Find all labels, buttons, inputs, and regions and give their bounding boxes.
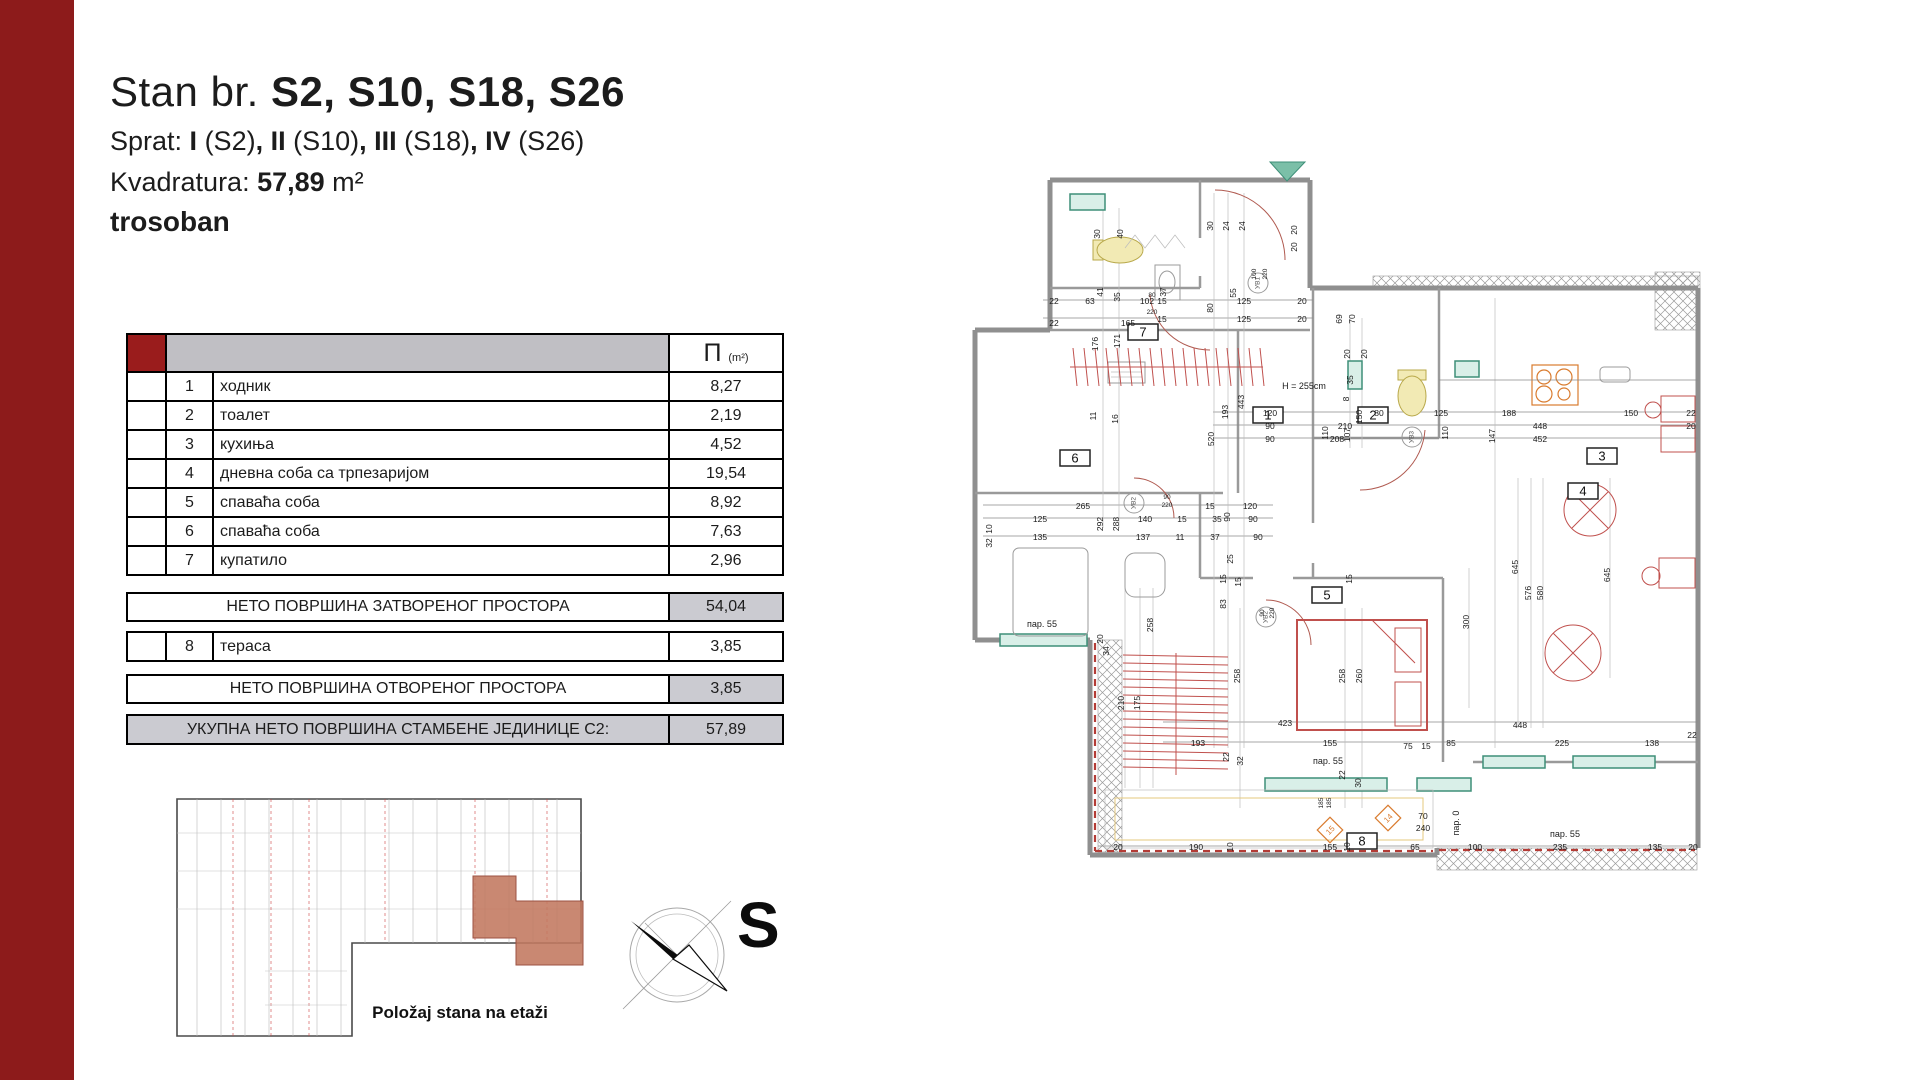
dimension-label: 22 [1686, 408, 1696, 418]
floor-plan-svg: 12345678 УВ1УВ2УВ2УВ3 1514 2263102221658… [783, 148, 1703, 888]
dimension-label: 20 [1686, 421, 1696, 431]
dimension-label: 11 [1088, 411, 1098, 420]
dimension-label: 22 [1337, 770, 1347, 780]
dimension-label: 125 [1237, 314, 1251, 324]
window-icon [1483, 756, 1545, 768]
dimension-label: 90 [1265, 421, 1275, 431]
dimension-label: 69 [1334, 314, 1344, 324]
dimension-label: 75 [1403, 741, 1413, 751]
room-area: 8,27 [669, 372, 783, 401]
svg-text:УВ3: УВ3 [1409, 431, 1416, 443]
dimension-label: 137 [1136, 532, 1150, 542]
dimension-label: 423 [1278, 718, 1292, 728]
dimension-label: 85 [1446, 738, 1456, 748]
dimension-label: 20 [1297, 314, 1307, 324]
table-row: 6спаваћа соба7,63 [127, 517, 783, 546]
dimension-label: 10 [984, 524, 994, 534]
dimension-label: 32 [984, 538, 994, 548]
dimension-label: 171 [1112, 334, 1122, 348]
diamond-marker: 14 [1375, 805, 1400, 830]
dimension-label: 90 [1222, 512, 1232, 522]
dimension-label: 188 [1502, 408, 1516, 418]
dimension-label: 20 [1289, 242, 1299, 252]
dimension-label: 65 [1410, 842, 1420, 852]
dimension-label: 150 [1354, 410, 1364, 424]
dimension-label: 15 [1157, 314, 1167, 324]
area-line: Kvadratura: 57,89 m² [110, 167, 625, 198]
dimension-label: 520 [1206, 432, 1216, 446]
compass [615, 893, 743, 1023]
dimension-label: 35 [1345, 375, 1355, 385]
dimension-label: 220 [1162, 502, 1173, 509]
dimension-label: 448 [1533, 421, 1547, 431]
floor-line: Sprat: I (S2), II (S10), III (S18), IV (… [110, 126, 625, 157]
table-row: 3кухиња4,52 [127, 430, 783, 459]
page-title: Stan br. S2, S10, S18, S26 [110, 68, 625, 116]
dimension-label: 220 [1262, 268, 1269, 279]
floor-line-segment: (S18) [397, 126, 471, 156]
dimension-label: 220 [1269, 607, 1276, 618]
apartment-type: trosoban [110, 206, 625, 238]
dimension-label: 100 [1251, 268, 1258, 279]
dimension-label: 288 [1111, 517, 1121, 531]
compass-icon [615, 893, 743, 1018]
dimension-label: 30 [1205, 221, 1215, 231]
dimension-label: пар. 55 [1313, 756, 1343, 766]
dimension-label: 265 [1076, 501, 1090, 511]
header-gray-cell [166, 334, 669, 372]
dimension-label: 24 [1237, 221, 1247, 231]
armchair-icon [1125, 553, 1165, 597]
wardrobe-hatch [1123, 653, 1228, 775]
dimension-label: 37 [1210, 532, 1220, 542]
room-number-boxes: 12345678 [1060, 324, 1617, 849]
dimension-label: 34 [1101, 646, 1111, 656]
table-row: 1ходник8,27 [127, 372, 783, 401]
total-area-table: УКУПНА НЕТО ПОВРШИНА СТАМБЕНЕ ЈЕДИНИЦЕ С… [126, 714, 784, 745]
table-header-row: П (m²) [127, 334, 783, 372]
room-name: тоалет [213, 401, 669, 430]
room-area: 7,63 [669, 517, 783, 546]
dimension-label: 120 [1243, 501, 1257, 511]
room-name: ходник [213, 372, 669, 401]
row-marker-cell [127, 430, 166, 459]
dimension-label: 235 [1553, 842, 1567, 852]
table-row: 5спаваћа соба8,92 [127, 488, 783, 517]
row-marker-cell [127, 459, 166, 488]
dimension-label: 80 [1205, 303, 1215, 313]
dimension-label: 155 [1323, 738, 1337, 748]
dimension-label: 292 [1095, 517, 1105, 531]
dimension-label: 138 [1645, 738, 1659, 748]
room-area: 2,19 [669, 401, 783, 430]
window-icon [1417, 778, 1471, 791]
room-number-box: 5 [1312, 587, 1342, 603]
dimension-label: 125 [1237, 296, 1251, 306]
floor-line-segment: (S26) [511, 126, 585, 156]
dimension-label: 15 [1218, 574, 1228, 584]
room-name: кухиња [213, 430, 669, 459]
dimension-label: 155 [1323, 842, 1337, 852]
dimension-label: пар. 0 [1451, 811, 1461, 836]
dimension-label: 165 [1121, 318, 1135, 328]
dimension-label: пар. 55 [1550, 829, 1580, 839]
dimension-label: 300 [1461, 615, 1471, 629]
room-number: 8 [166, 632, 213, 661]
dimension-label: 240 [1416, 823, 1430, 833]
dimension-label: 225 [1555, 738, 1569, 748]
table-row: 8 тераса 3,85 [127, 632, 783, 661]
floor-line-segment: , IV [470, 126, 511, 156]
dimension-label: 11 [1176, 532, 1185, 542]
dimension-label: 176 [1090, 337, 1100, 351]
table-row: 2тоалет2,19 [127, 401, 783, 430]
floor-line-segment: , II [256, 126, 286, 156]
room-name: купатило [213, 546, 669, 575]
window-icon [1573, 756, 1655, 768]
compass-north-label: S [737, 888, 780, 962]
row-marker-cell [127, 632, 166, 661]
room-number-box: 3 [1587, 448, 1617, 464]
dimension-label: 576 [1523, 586, 1533, 600]
room-number-label: 7 [1139, 325, 1146, 340]
fixtures [1093, 235, 1698, 416]
terrace-table: 8 тераса 3,85 [126, 631, 784, 662]
table-row: НЕТО ПОВРШИНА ОТВОРЕНОГ ПРОСТОРА 3,85 [127, 675, 783, 703]
dimension-label: 175 [1132, 696, 1142, 710]
window-icon [1455, 361, 1479, 377]
dimension-label: 15 [1177, 514, 1187, 524]
dimension-label: 645 [1602, 568, 1612, 582]
dimension-label: 258 [1145, 618, 1155, 632]
hatch-strip-terrace [1098, 640, 1122, 852]
dimension-label: 8 [1341, 396, 1351, 401]
dimension-label: 20 [1342, 349, 1352, 359]
dimension-label: 125 [1033, 514, 1047, 524]
dimension-label: 185 [1326, 797, 1333, 808]
desk-icon [1659, 558, 1695, 588]
room-number-label: 6 [1071, 451, 1078, 466]
left-accent-bar [0, 0, 74, 1080]
dimension-label: 41 [1095, 287, 1105, 297]
dimension-label: 208 [1330, 434, 1344, 444]
dimension-label: 30 [1353, 778, 1363, 788]
window-icon [1070, 194, 1105, 210]
svg-text:15: 15 [1324, 824, 1337, 837]
dimension-label: 90 [1259, 609, 1266, 617]
row-marker-cell [127, 488, 166, 517]
door-type-marker: УВ2 [1124, 493, 1144, 513]
dimension-label: 258 [1337, 669, 1347, 683]
row-marker-cell [127, 401, 166, 430]
table-row: 4дневна соба са трпезаријом19,54 [127, 459, 783, 488]
room-area: 2,96 [669, 546, 783, 575]
title-block: Stan br. S2, S10, S18, S26 Sprat: I (S2)… [110, 68, 625, 238]
dimension-label: 20 [1359, 349, 1369, 359]
dimension-label: 32 [1235, 756, 1245, 766]
room-number-box: 4 [1568, 483, 1598, 499]
table-row: НЕТО ПОВРШИНА ЗАТВОРЕНОГ ПРОСТОРА 54,04 [127, 593, 783, 621]
closed-area-summary: НЕТО ПОВРШИНА ЗАТВОРЕНОГ ПРОСТОРА 54,04 [126, 592, 784, 622]
dimension-label: 10 [1342, 842, 1352, 852]
dimension-label: 100 [1468, 842, 1482, 852]
table-row: УКУПНА НЕТО ПОВРШИНА СТАМБЕНЕ ЈЕДИНИЦЕ С… [127, 715, 783, 744]
terrace [1095, 643, 1695, 851]
dimension-label: 90 [1248, 514, 1258, 524]
dimension-label: 22 [1221, 752, 1231, 762]
dimension-label: 135 [1033, 532, 1047, 542]
dimension-label: 25 [1225, 554, 1235, 564]
floor-line-segment: , III [359, 126, 397, 156]
rooms-table: П (m²)1ходник8,272тоалет2,193кухиња4,524… [126, 333, 784, 576]
floor-plan: 12345678 УВ1УВ2УВ2УВ3 1514 2263102221658… [783, 148, 1703, 893]
dimension-label: 90 [1253, 532, 1263, 542]
table-row: 7купатило2,96 [127, 546, 783, 575]
dimension-label: 185 [1318, 797, 1325, 808]
dimension-label: 15 [1205, 501, 1215, 511]
window-icon [1265, 778, 1387, 791]
dimension-label: 55 [1228, 288, 1238, 298]
room-number-box: 6 [1060, 450, 1090, 466]
summary-value: 54,04 [669, 593, 783, 621]
dimension-label: 210 [1338, 421, 1352, 431]
dimension-label: 193 [1220, 405, 1230, 419]
dimension-label: H = 255cm [1282, 381, 1326, 391]
dimension-label: 193 [1191, 738, 1205, 748]
room-name: тераса [213, 632, 669, 661]
total-value: 57,89 [669, 715, 783, 744]
dimension-label: 70 [1418, 811, 1428, 821]
dimension-label: 20 [1095, 634, 1105, 644]
room-number: 1 [166, 372, 213, 401]
dimension-label: 452 [1533, 434, 1547, 444]
dimension-label: 35 [1112, 292, 1122, 302]
summary-value: 3,85 [669, 675, 783, 703]
dimension-label: 135 [1648, 842, 1662, 852]
dimension-label: 80 [1374, 408, 1384, 418]
row-marker-cell [127, 517, 166, 546]
dimension-label: 147 [1487, 429, 1497, 443]
toilet-icon [1398, 376, 1426, 416]
toilet-icon [1097, 237, 1143, 263]
dimension-label: 37 [1158, 287, 1168, 297]
title-units: S2, S10, S18, S26 [271, 68, 625, 115]
dimension-label: 140 [1138, 514, 1152, 524]
dimension-label: 90 [1265, 434, 1275, 444]
dimension-label: 20 [1113, 842, 1123, 852]
door-type-markers: УВ1УВ2УВ2УВ3 [1124, 273, 1422, 627]
floor-line-segment: (S2) [197, 126, 256, 156]
room-number: 6 [166, 517, 213, 546]
dimension-label: 258 [1232, 669, 1242, 683]
total-label: УКУПНА НЕТО ПОВРШИНА СТАМБЕНЕ ЈЕДИНИЦЕ С… [127, 715, 669, 744]
dimension-label: 190 [1189, 842, 1203, 852]
header-red-cell [127, 334, 166, 372]
dimension-label: 580 [1535, 586, 1545, 600]
area-column-header: П (m²) [669, 334, 783, 372]
room-number-label: 5 [1323, 588, 1330, 603]
room-name: спаваћа соба [213, 517, 669, 546]
dimension-label: 10 [1225, 842, 1235, 852]
page: Stan br. S2, S10, S18, S26 Sprat: I (S2)… [0, 0, 1920, 1080]
dimension-label: 20 [1289, 225, 1299, 235]
dimension-label: 22 [1687, 730, 1697, 740]
dimension-label: 15 [1233, 577, 1243, 587]
dimension-label: 260 [1354, 669, 1364, 683]
dimension-label: 443 [1236, 395, 1246, 409]
dimension-label: 24 [1221, 221, 1231, 231]
row-marker-cell [127, 372, 166, 401]
area-value: 57,89 [257, 167, 325, 197]
row-marker-cell [127, 546, 166, 575]
dimension-label: 35 [1212, 514, 1222, 524]
summary-label: НЕТО ПОВРШИНА ЗАТВОРЕНОГ ПРОСТОРА [127, 593, 669, 621]
area-unit: m² [325, 167, 364, 197]
dimension-label: пар. 55 [1027, 619, 1057, 629]
dimension-label: 80 [1148, 292, 1156, 299]
room-area: 4,52 [669, 430, 783, 459]
room-number: 2 [166, 401, 213, 430]
title-prefix: Stan br. [110, 68, 271, 115]
room-number: 4 [166, 459, 213, 488]
dimension-label: 16 [1110, 414, 1120, 424]
pillow [1395, 628, 1421, 672]
dimension-label: 210 [1116, 696, 1126, 710]
dimension-label: 125 [1434, 408, 1448, 418]
area-label: Kvadratura: [110, 167, 257, 197]
dimension-label: 15 [1421, 741, 1431, 751]
dimension-label: 110 [1440, 426, 1450, 440]
room-area: 19,54 [669, 459, 783, 488]
floor-line-segment: (S10) [286, 126, 360, 156]
location-caption: Položaj stana na etaži [348, 1003, 572, 1023]
hatch-corner [1655, 272, 1700, 330]
dimension-label: 220 [1147, 309, 1158, 316]
pillow [1395, 682, 1421, 726]
dimension-label: 40 [1115, 229, 1125, 239]
dimension-label: 150 [1624, 408, 1638, 418]
dimension-label: 30 [1092, 229, 1102, 239]
dimension-label: 645 [1510, 560, 1520, 574]
summary-label: НЕТО ПОВРШИНА ОТВОРЕНОГ ПРОСТОРА [127, 675, 669, 703]
room-name: спаваћа соба [213, 488, 669, 517]
svg-text:14: 14 [1382, 812, 1395, 825]
dimension-label: 70 [1347, 314, 1357, 324]
dimension-label: 83 [1218, 599, 1228, 609]
dimension-label: 22 [1049, 318, 1059, 328]
dimension-label: 20 [1297, 296, 1307, 306]
room-number: 3 [166, 430, 213, 459]
dimension-label: 120 [1263, 408, 1277, 418]
dimension-label: 110 [1320, 426, 1330, 440]
room-name: дневна соба са трпезаријом [213, 459, 669, 488]
room-number-label: 4 [1579, 484, 1586, 499]
room-number: 7 [166, 546, 213, 575]
dimension-label: 22 [1049, 296, 1059, 306]
dimension-label: 448 [1513, 720, 1527, 730]
floor-line-segment: Sprat: [110, 126, 190, 156]
dimension-label: 15 [1344, 574, 1354, 584]
dimension-label: 20 [1688, 842, 1698, 852]
dimension-label: 63 [1085, 296, 1095, 306]
dimension-label: 90 [1163, 494, 1171, 501]
room-number-label: 8 [1358, 834, 1365, 849]
room-number: 5 [166, 488, 213, 517]
shower-icon [1108, 362, 1145, 383]
cooktop-icon [1532, 365, 1578, 405]
room-area: 8,92 [669, 488, 783, 517]
room-area: 3,85 [669, 632, 783, 661]
diamond-marker: 15 [1317, 817, 1342, 842]
room-number-label: 3 [1598, 449, 1605, 464]
open-area-summary: НЕТО ПОВРШИНА ОТВОРЕНОГ ПРОСТОРА 3,85 [126, 674, 784, 704]
svg-text:УВ2: УВ2 [1131, 497, 1138, 509]
interior-walls [975, 180, 1443, 762]
floor-line-segment: I [190, 126, 198, 156]
